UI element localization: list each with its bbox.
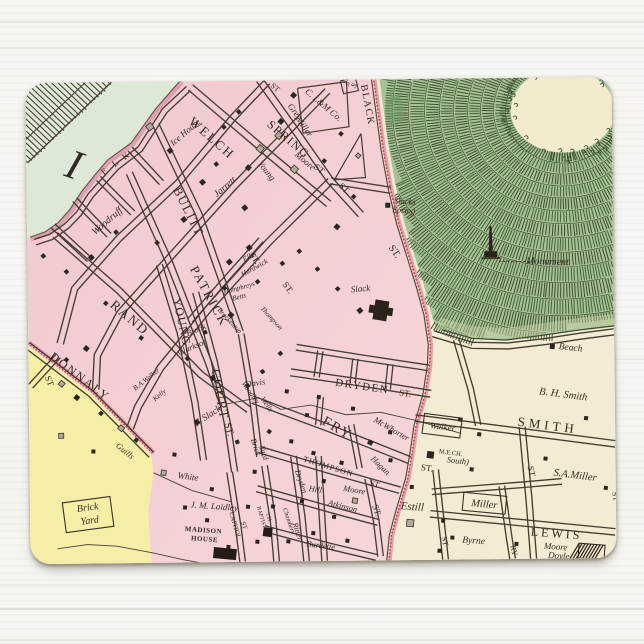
svg-text:Byrne: Byrne: [462, 536, 485, 548]
svg-text:ST.: ST.: [399, 387, 412, 399]
svg-text:ST: ST: [440, 536, 451, 547]
svg-text:Estill: Estill: [399, 500, 424, 514]
svg-text:ST.: ST.: [420, 462, 433, 473]
svg-text:Spring: Spring: [392, 204, 415, 215]
svg-text:Doyle: Doyle: [547, 550, 570, 562]
svg-text:Monument: Monument: [525, 256, 569, 268]
svg-text:Slack: Slack: [350, 283, 371, 295]
